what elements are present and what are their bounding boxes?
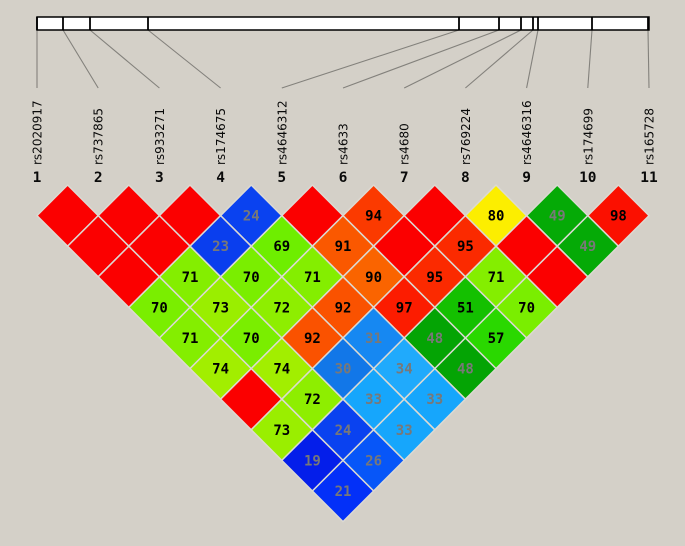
- snp-index-label-4: 4: [216, 170, 225, 186]
- ld-value-6-7: 94: [365, 209, 382, 225]
- snp-name-label-rs174699: rs174699: [581, 108, 595, 165]
- ld-value-1-6: 71: [182, 331, 199, 347]
- ld-value-5-11: 48: [457, 362, 474, 378]
- snp-index-label-9: 9: [522, 170, 531, 186]
- ld-value-3-7: 72: [273, 300, 290, 316]
- ld-value-2-9: 72: [304, 392, 321, 408]
- snp-name-label-rs4633: rs4633: [337, 123, 351, 165]
- snp-name-label-rs4646312: rs4646312: [275, 100, 289, 165]
- ld-value-7-10: 71: [488, 270, 505, 286]
- ld-value-3-5: 23: [212, 239, 229, 255]
- snp-name-label-rs737865: rs737865: [92, 108, 106, 165]
- ld-value-5-9: 97: [396, 300, 413, 316]
- ld-value-4-5: 24: [243, 209, 260, 225]
- ld-value-1-11: 21: [335, 484, 352, 500]
- chromosome-ruler: [37, 17, 649, 30]
- snp-index-label-7: 7: [400, 170, 409, 186]
- ld-value-6-10: 51: [457, 300, 474, 316]
- ld-value-6-11: 57: [488, 331, 505, 347]
- ld-value-4-8: 92: [335, 300, 352, 316]
- ld-value-8-9: 80: [488, 209, 505, 225]
- ld-value-6-9: 95: [426, 270, 443, 286]
- snp-index-label-5: 5: [277, 170, 286, 186]
- ld-value-2-8: 74: [273, 362, 290, 378]
- ld-value-5-7: 91: [335, 239, 352, 255]
- snp-name-label-rs769224: rs769224: [459, 108, 473, 165]
- ld-value-1-5: 70: [151, 300, 168, 316]
- ld-value-3-10: 33: [365, 392, 382, 408]
- ld-value-1-9: 73: [273, 423, 290, 439]
- ld-value-4-6: 69: [273, 239, 290, 255]
- snp-name-label-rs4680: rs4680: [398, 123, 412, 165]
- ld-value-3-6: 70: [243, 270, 260, 286]
- snp-index-label-6: 6: [339, 170, 348, 186]
- snp-name-label-rs2020917: rs2020917: [31, 100, 45, 165]
- snp-name-label-rs165728: rs165728: [643, 108, 657, 165]
- ld-value-5-10: 48: [426, 331, 443, 347]
- ld-value-7-11: 70: [518, 300, 535, 316]
- ld-value-3-8: 92: [304, 331, 321, 347]
- ld-plot-figure: rs20209171rs7378652rs9332713rs1746754rs4…: [0, 0, 685, 546]
- snp-index-label-2: 2: [94, 170, 103, 186]
- ld-value-10-11: 98: [610, 209, 627, 225]
- ld-value-2-7: 70: [243, 331, 260, 347]
- ld-value-1-10: 19: [304, 453, 321, 469]
- ld-value-2-5: 71: [182, 270, 199, 286]
- ld-value-5-8: 90: [365, 270, 382, 286]
- snp-index-label-10: 10: [579, 170, 596, 186]
- ld-plot-canvas: rs20209171rs7378652rs9332713rs1746754rs4…: [0, 0, 685, 546]
- ld-value-3-9: 30: [335, 362, 352, 378]
- ld-value-2-11: 26: [365, 453, 382, 469]
- ld-value-9-10: 49: [549, 209, 566, 225]
- ld-value-2-6: 73: [212, 300, 229, 316]
- ld-value-4-9: 31: [365, 331, 382, 347]
- snp-name-label-rs174675: rs174675: [214, 108, 228, 165]
- snp-index-label-1: 1: [33, 170, 42, 186]
- ld-value-4-10: 34: [396, 362, 413, 378]
- ld-value-9-11: 49: [579, 239, 596, 255]
- ld-value-4-7: 71: [304, 270, 321, 286]
- ld-value-3-11: 33: [396, 423, 413, 439]
- snp-index-label-11: 11: [640, 170, 658, 186]
- snp-index-label-3: 3: [155, 170, 164, 186]
- snp-index-label-8: 8: [461, 170, 470, 186]
- ld-value-1-7: 74: [212, 362, 229, 378]
- snp-name-label-rs4646316: rs4646316: [520, 100, 534, 165]
- ld-value-7-9: 95: [457, 239, 474, 255]
- ld-value-4-11: 33: [426, 392, 443, 408]
- snp-name-label-rs933271: rs933271: [153, 108, 167, 165]
- ld-value-2-10: 24: [335, 423, 352, 439]
- ruler-bar: [37, 17, 649, 30]
